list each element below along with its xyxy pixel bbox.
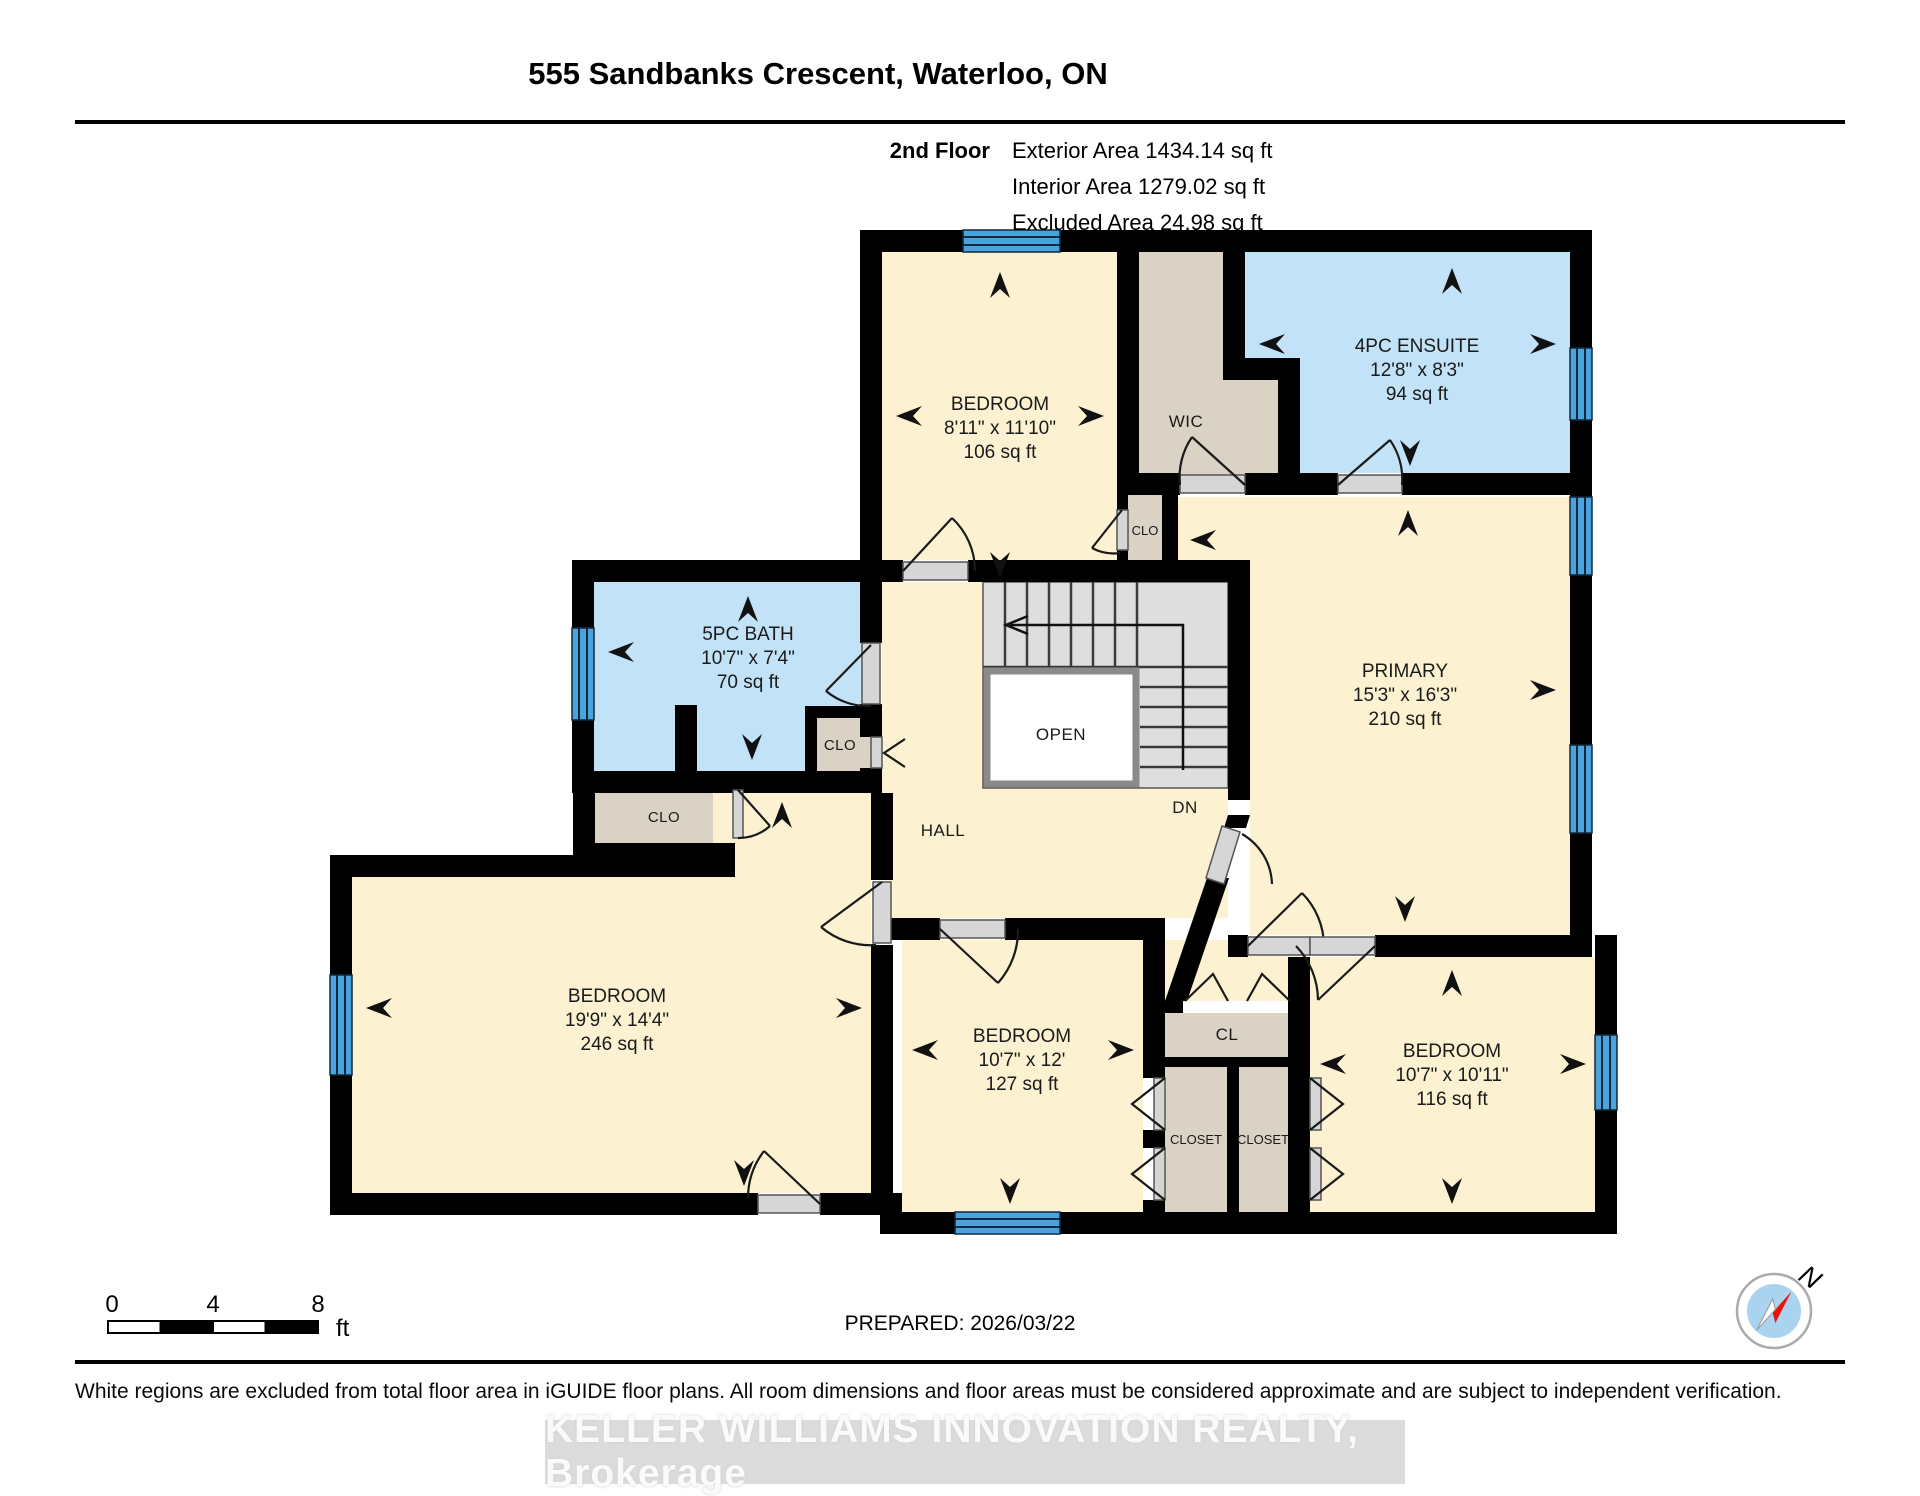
label-ensuite-area: 94 sq ft — [1386, 384, 1449, 405]
header-divider — [75, 120, 1845, 124]
label-bedroom-left-dims: 19'9" x 14'4" — [565, 1010, 669, 1031]
brokerage-watermark: KELLER WILLIAMS INNOVATION REALTY, Broke… — [545, 1420, 1405, 1484]
label-bedroom-middle-name: BEDROOM — [973, 1026, 1071, 1047]
floor-info: 2nd Floor Exterior Area 1434.14 sq ft In… — [860, 138, 1273, 246]
label-bedroom-right-area: 116 sq ft — [1416, 1089, 1488, 1110]
prepared-date: PREPARED: 2026/03/22 — [760, 1312, 1160, 1336]
label-open: OPEN — [1036, 725, 1086, 744]
label-bedroom-middle-area: 127 sq ft — [986, 1074, 1060, 1095]
label-bath-dims: 10'7" x 7'4" — [701, 648, 795, 669]
window-icon — [330, 975, 352, 1075]
stairs — [983, 582, 1228, 788]
label-wic: WIC — [1169, 412, 1204, 431]
label-clo-bath: CLO — [824, 737, 856, 754]
window-icon — [1570, 348, 1592, 420]
label-bedroom-left-area: 246 sq ft — [581, 1034, 655, 1055]
label-bath-name: 5PC BATH — [702, 624, 794, 645]
window-icon — [955, 1212, 1060, 1234]
label-bedroom-left-name: BEDROOM — [568, 986, 666, 1007]
label-hall: HALL — [921, 821, 966, 840]
label-bedroom-right-name: BEDROOM — [1403, 1041, 1501, 1062]
scale-tick-4: 4 — [206, 1291, 219, 1318]
scale-tick-0: 0 — [105, 1291, 118, 1318]
excluded-area: Excluded Area 24.98 sq ft — [1012, 210, 1263, 236]
footer-divider — [75, 1360, 1845, 1364]
label-bedroom-top-area: 106 sq ft — [964, 442, 1038, 463]
label-primary-area: 210 sq ft — [1369, 709, 1443, 730]
scale-unit: ft — [336, 1315, 350, 1342]
label-cl: CL — [1216, 1025, 1239, 1044]
label-ensuite-name: 4PC ENSUITE — [1355, 336, 1480, 357]
window-icon — [1595, 1035, 1617, 1110]
label-bedroom-top-name: BEDROOM — [951, 394, 1049, 415]
interior-area: Interior Area 1279.02 sq ft — [1012, 174, 1265, 200]
label-bedroom-top-dims: 8'11" x 11'10" — [944, 418, 1056, 439]
window-icon — [572, 628, 594, 720]
hall-area — [882, 582, 983, 918]
window-icon — [1570, 745, 1592, 833]
label-clo-bedroom: CLO — [1132, 523, 1159, 538]
label-dn: DN — [1172, 798, 1198, 817]
compass-icon: N — [1737, 1259, 1827, 1348]
floor-label: 2nd Floor — [860, 138, 990, 164]
label-primary-name: PRIMARY — [1362, 661, 1449, 682]
label-bedroom-middle-dims: 10'7" x 12' — [979, 1050, 1066, 1071]
label-bedroom-right-dims: 10'7" x 10'11" — [1395, 1065, 1508, 1086]
label-closet1: CLOSET — [1170, 1132, 1222, 1147]
disclaimer-text: White regions are excluded from total fl… — [75, 1380, 1865, 1404]
exterior-area: Exterior Area 1434.14 sq ft — [1012, 138, 1273, 164]
scale-bar: 0 4 8 ft — [105, 1291, 349, 1342]
label-bath-area: 70 sq ft — [717, 672, 780, 693]
label-clo-hall: CLO — [648, 809, 680, 826]
window-icon — [1570, 497, 1592, 575]
label-primary-dims: 15'3" x 16'3" — [1353, 685, 1457, 706]
scale-tick-8: 8 — [311, 1291, 324, 1318]
label-ensuite-dims: 12'8" x 8'3" — [1370, 360, 1464, 381]
label-closet2: CLOSET — [1237, 1132, 1289, 1147]
page-title: 555 Sandbanks Crescent, Waterloo, ON — [0, 56, 1636, 92]
